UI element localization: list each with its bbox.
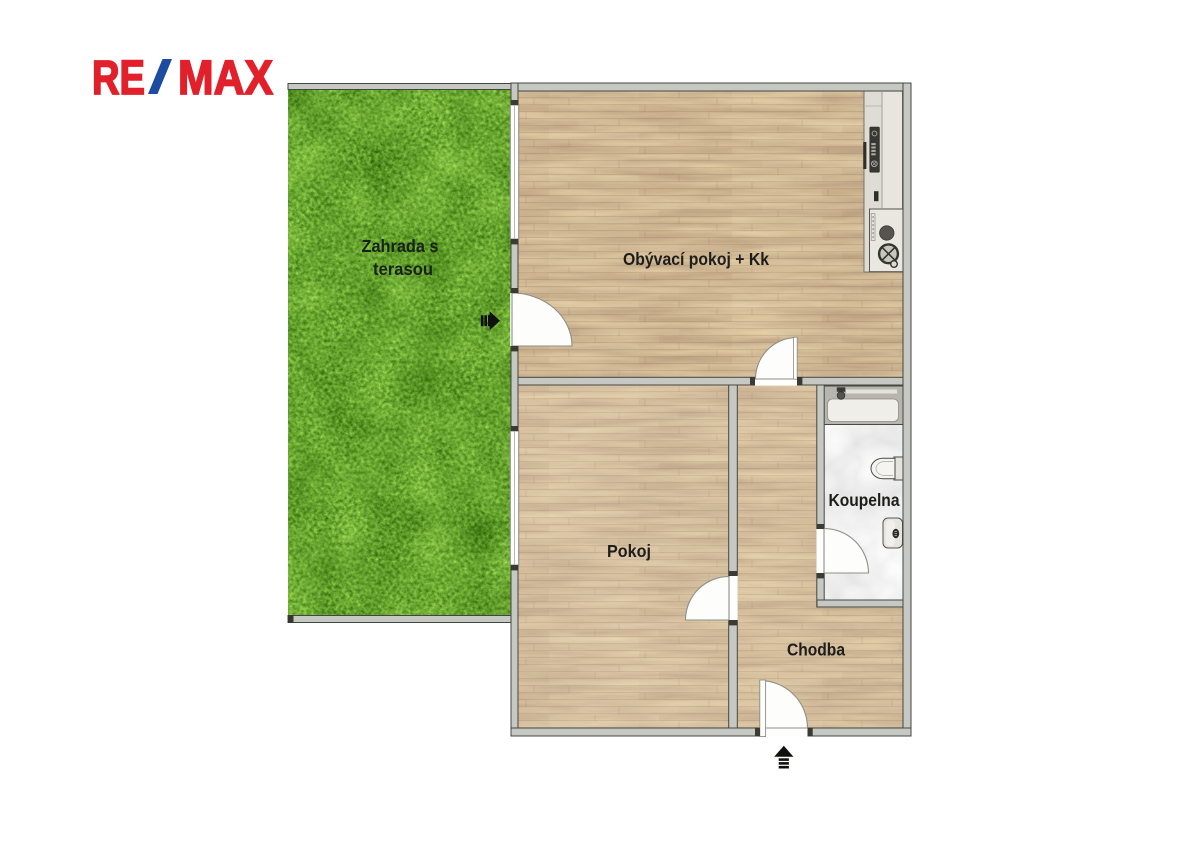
svg-text:Pokoj: Pokoj [607, 541, 651, 561]
svg-text:Zahrada s: Zahrada s [362, 236, 439, 256]
svg-text:MAX: MAX [178, 52, 273, 105]
svg-text:Obývací pokoj + Kk: Obývací pokoj + Kk [623, 249, 769, 269]
svg-text:Koupelna: Koupelna [829, 490, 900, 510]
svg-text:RE: RE [92, 52, 145, 105]
svg-text:Chodba: Chodba [787, 640, 845, 660]
svg-text:terasou: terasou [373, 259, 433, 279]
